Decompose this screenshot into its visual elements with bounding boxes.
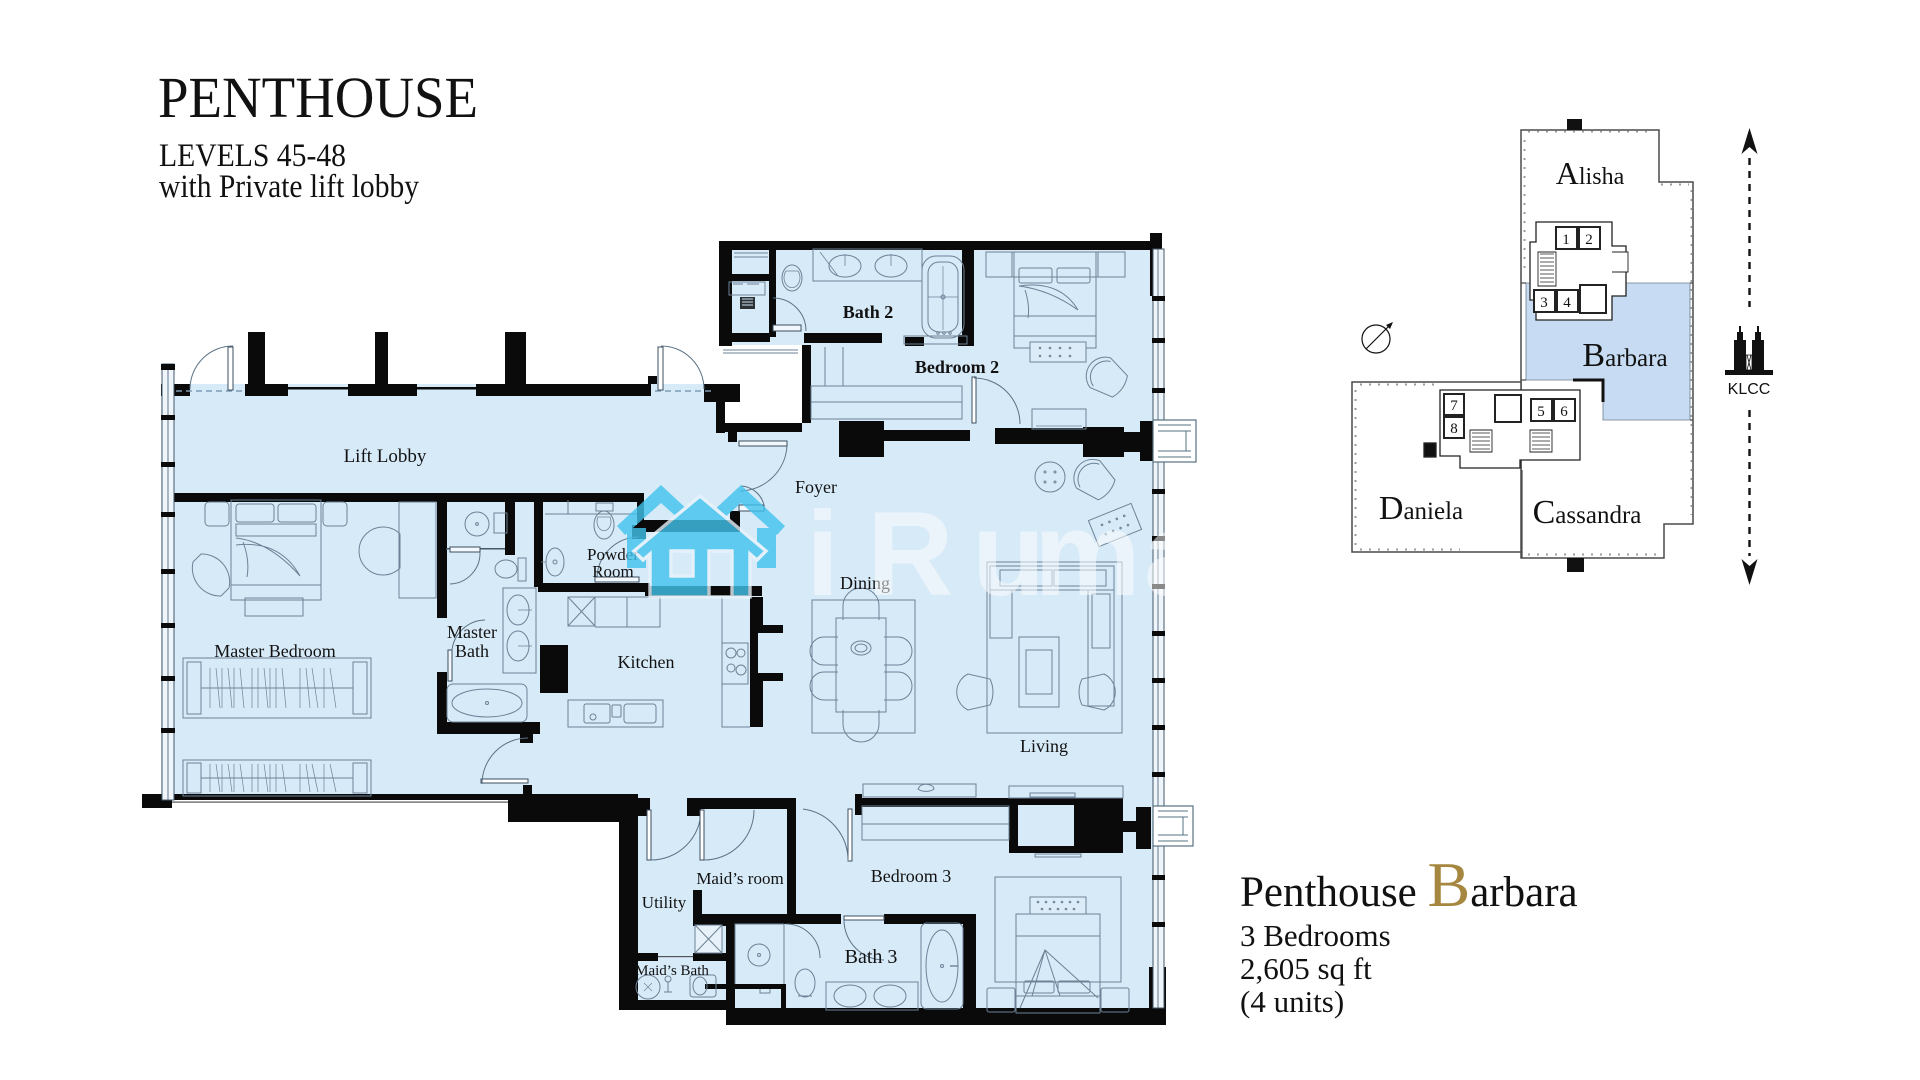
svg-text:Living: Living	[1020, 736, 1068, 756]
svg-text:4: 4	[1563, 295, 1571, 311]
svg-text:Maid’s room: Maid’s room	[696, 869, 783, 888]
svg-text:3: 3	[1540, 295, 1548, 311]
svg-text:Bath 2: Bath 2	[843, 302, 894, 322]
svg-text:7: 7	[1450, 398, 1458, 414]
svg-text:6: 6	[1560, 404, 1568, 420]
svg-text:Bedroom 3: Bedroom 3	[871, 866, 952, 886]
svg-text:2,605 sq ft: 2,605 sq ft	[1240, 951, 1372, 986]
svg-text:(4 units): (4 units)	[1240, 984, 1344, 1019]
svg-text:Master Bedroom: Master Bedroom	[214, 641, 335, 661]
svg-text:Lift Lobby: Lift Lobby	[344, 446, 427, 467]
svg-text:1: 1	[1562, 232, 1570, 248]
svg-text:Master: Master	[447, 622, 497, 642]
svg-text:KLCC: KLCC	[1728, 381, 1771, 398]
svg-text:Kitchen: Kitchen	[618, 652, 675, 672]
svg-text:8: 8	[1450, 421, 1458, 437]
svg-text:Bath 3: Bath 3	[845, 946, 898, 968]
svg-text:Utility: Utility	[642, 893, 687, 912]
svg-text:PENTHOUSE: PENTHOUSE	[158, 65, 478, 130]
svg-text:iRuma: iRuma	[806, 487, 1212, 621]
svg-text:3 Bedrooms: 3 Bedrooms	[1240, 918, 1391, 953]
svg-text:Bedroom 2: Bedroom 2	[915, 357, 999, 377]
svg-text:Bath: Bath	[455, 641, 489, 661]
svg-text:2: 2	[1585, 232, 1593, 248]
svg-text:5: 5	[1537, 404, 1545, 420]
svg-text:Maid’s Bath: Maid’s Bath	[635, 963, 709, 979]
svg-text:with Private lift lobby: with Private lift lobby	[159, 169, 419, 205]
